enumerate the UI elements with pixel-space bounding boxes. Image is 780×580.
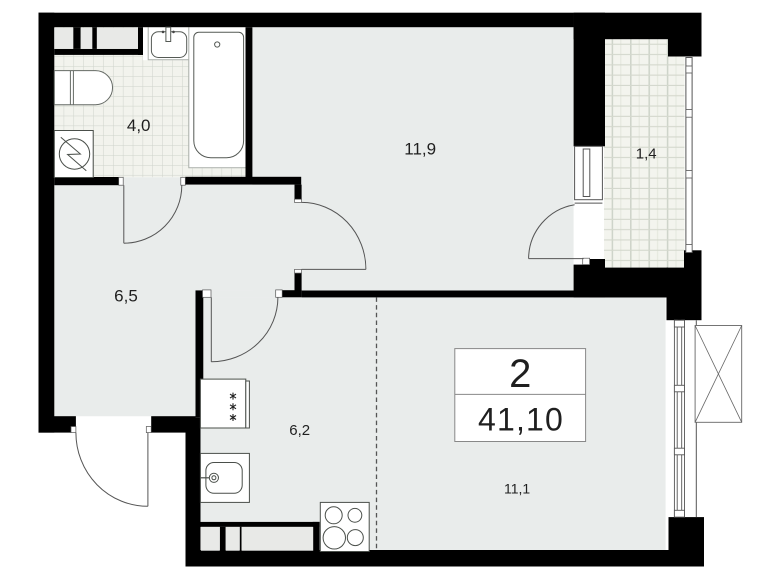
svg-text:11,9: 11,9 xyxy=(404,140,436,159)
svg-text:1,4: 1,4 xyxy=(636,145,657,162)
svg-text:2: 2 xyxy=(509,352,531,396)
svg-text:6,2: 6,2 xyxy=(289,422,310,439)
svg-text:4,0: 4,0 xyxy=(127,116,151,135)
svg-text:41,10: 41,10 xyxy=(478,401,564,437)
svg-text:6,5: 6,5 xyxy=(114,287,138,306)
svg-text:11,1: 11,1 xyxy=(504,481,530,497)
